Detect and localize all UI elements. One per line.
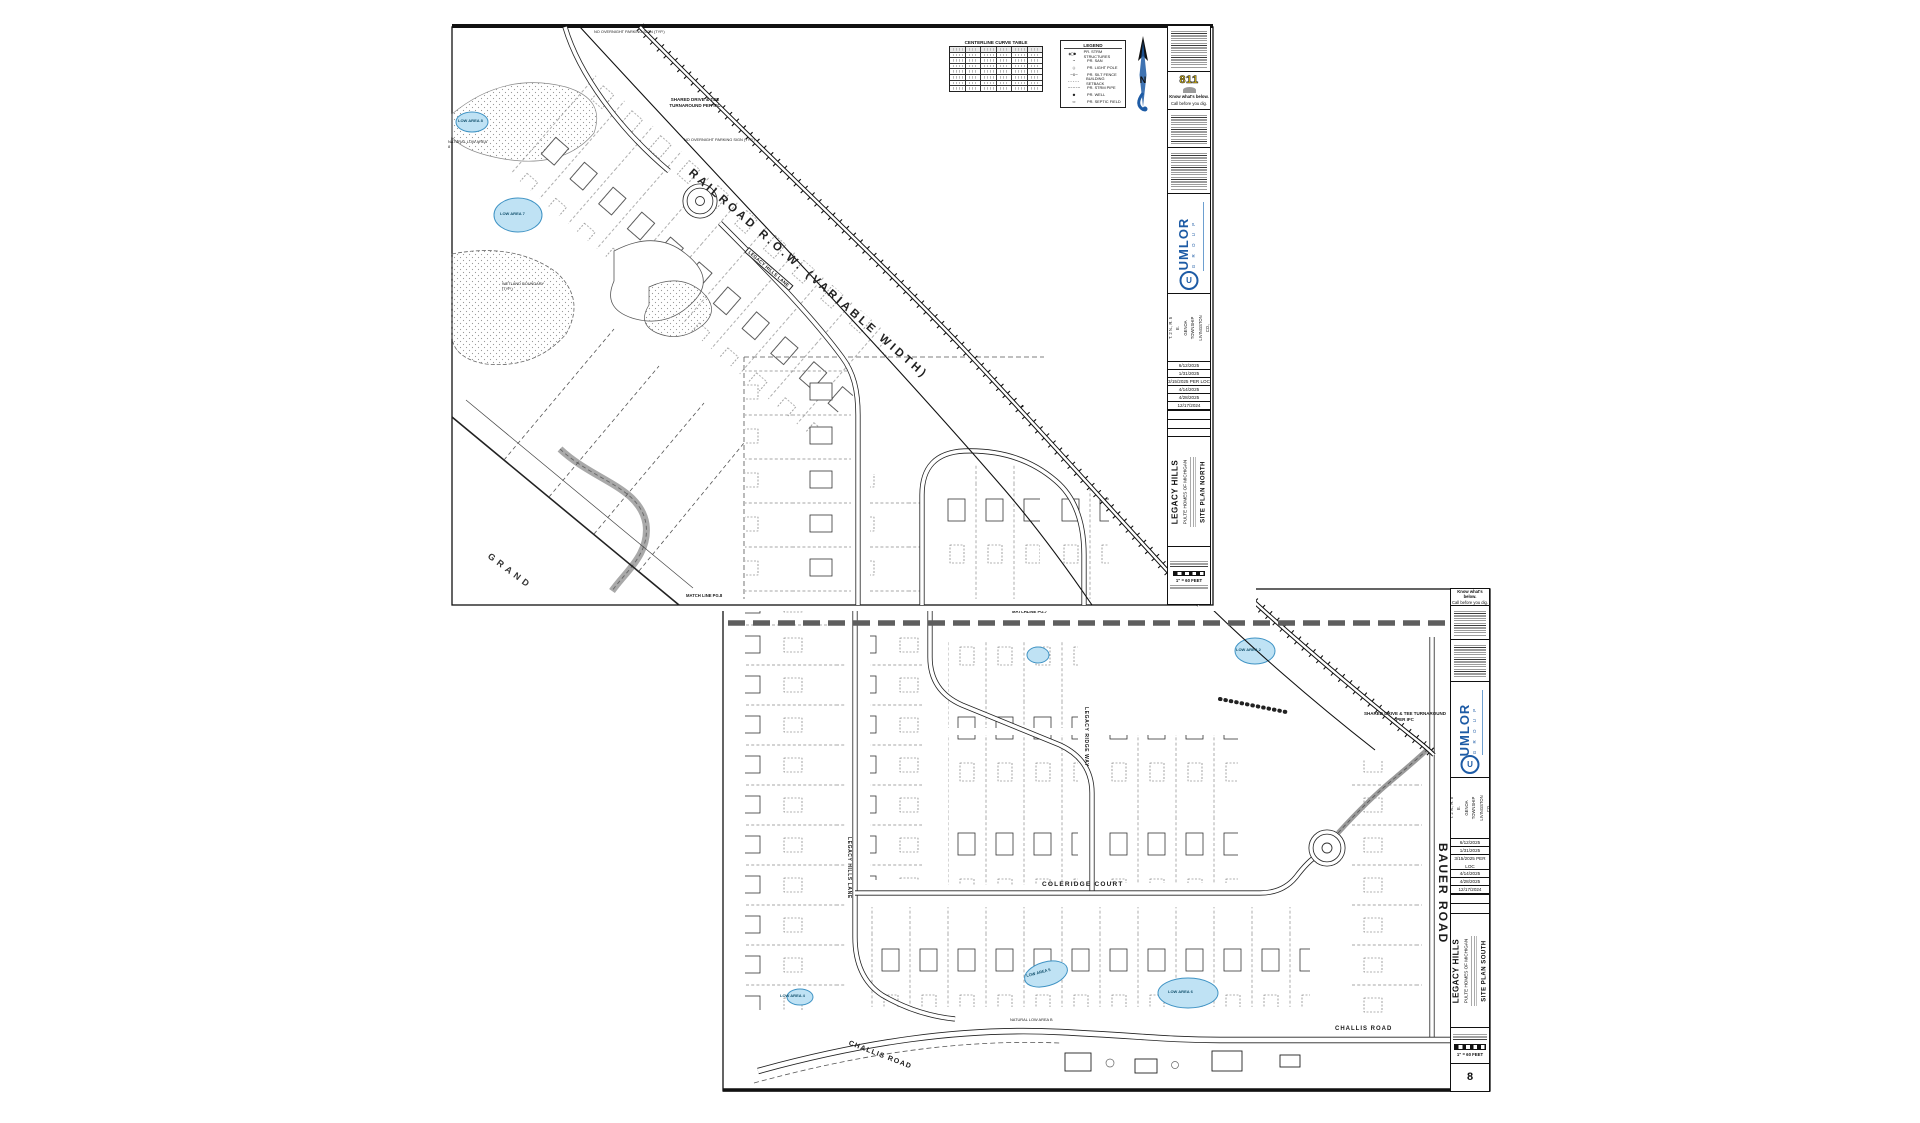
curve-table-title: CENTERLINE CURVE TABLE [949,40,1043,45]
legend-label: PR. SAN [1087,58,1103,63]
umlor-logo-panel: UMLOR G R O U P U [1451,682,1489,778]
legend-label: PR. STRM PIPE [1087,85,1116,90]
umlor-roundel-icon: U [1461,755,1480,774]
know-whats-below: Know what's below. [1169,94,1208,99]
street-label-coleridge-court: COLERIDGE COURT [1042,881,1124,888]
note-no-parking: NO OVERNIGHT PARKING SIGN (TYP.) [684,137,755,142]
graphic-scale-bar [1454,1044,1486,1050]
note-no-parking: NO OVERNIGHT PARKING SIGN (TYP.) [594,29,665,34]
umlor-wordmark: UMLOR [1177,217,1190,270]
sheet-title: SITE PLAN NORTH [1200,457,1208,527]
revision-row: 4/14/2025 [1451,869,1489,877]
umlor-roundel-icon: U [1180,271,1199,290]
pond-label-low-area-2: LOW AREA 2 [1236,647,1261,652]
note-natural-low-area: NATURAL LOW AREA B [1010,1017,1053,1022]
call-before-dig: Call before you dig. [1451,600,1489,605]
project-panel-north: LEGACY HILLS PULTE HOMES OF MICHIGAN SIT… [1168,437,1210,547]
scale-rows-texture [1170,585,1208,590]
call811-text-south: Know what's below. Call before you dig. [1451,589,1489,606]
blank-revision-rows [1451,894,1489,914]
street-label-challis-road-right: CHALLIS ROAD [1335,1026,1392,1032]
street-label-bauer-road: BAUER ROAD [1436,843,1450,944]
sheet-site-plan-north: RAILROAD R.O.W. (VARIABLE WIDTH) LEGACY … [444,19,1256,611]
pond-label-low-area-8: LOW AREA 8 [458,118,483,123]
client-name: PULTE HOMES OF MICHIGAN [1182,457,1188,527]
legend: LEGEND ◉□●PR. STRM STRUCTURES ~PR. SAN ○… [1060,40,1126,108]
call811-panel: 811 Know what's below. Call before you d… [1168,72,1210,110]
project-panel-south: LEGACY HILLS PULTE HOMES OF MICHIGAN SIT… [1451,914,1489,1028]
street-label-legacy-ridge-way: LEGACY RIDGE WAY [1083,707,1089,767]
legend-symbol-light-pole-icon: ○ [1064,65,1084,70]
sheet-number: 8 [1451,1064,1489,1091]
scale-block-north: 1" = 60 FEET [1168,547,1210,604]
revision-row: 1/31/2025 [1451,846,1489,854]
revision-row: 6/12/2025 [1451,839,1489,846]
revision-row: 6/12/2025 [1168,362,1210,369]
blank-revision-rows [1168,410,1210,437]
revision-row: 4/28/2025 [1451,877,1489,885]
scale-text: 1" = 60 FEET [1176,578,1202,583]
umlor-group-label: G R O U P [1190,217,1197,270]
note-wetland-boundary: WETLAND BOUNDARY (TYP.) [502,281,544,291]
revision-table: 6/12/2025 1/31/2025 3/15/2025 PER LOC 4/… [1168,362,1210,410]
note-natural-low-area: NATURAL LOW AREA 8 [448,139,490,149]
pond-label-low-area-6: LOW AREA 6 [1168,989,1193,994]
know-whats-below: Know what's below. [1451,589,1489,599]
project-name: LEGACY HILLS [1170,457,1180,527]
legend-symbol-strm-structures-icon: ◉□● [1064,51,1081,56]
notes-paragraph [1451,640,1489,682]
revision-table: 6/12/2025 1/31/2025 3/15/2025 PER LOC 4/… [1451,839,1489,894]
legend-symbol-strm-pipe-icon: –·–·– [1064,85,1084,90]
address-rule [1203,202,1204,271]
note-shared-drive-north: SHARED DRIVE & TEE TURNAROUND PER IFC [659,97,731,108]
notes-paragraph [1168,148,1210,194]
page: MATCHLINE PG.7 LEGACY RIDGE WAY LEGACY H… [0,0,1920,1123]
legend-label: PR. LIGHT POLE [1087,65,1117,70]
revision-row: 3/15/2025 PER LOC [1168,377,1210,385]
township-line: GENOA TOWNSHIP [1181,315,1196,340]
legend-symbol-well-icon: ● [1064,92,1084,97]
scale-rows-texture [1170,561,1208,569]
revision-row: 12/17/2024 [1451,885,1489,893]
svg-text:N: N [1140,75,1147,85]
umlor-logo-panel: UMLOR G R O U P U [1168,194,1210,294]
client-address-texture [1471,936,1476,1006]
umlor-wordmark: UMLOR [1458,703,1471,756]
county-line: LIVINGSTON CO., MICHIGAN [1478,795,1489,820]
county-line: LIVINGSTON CO., MICHIGAN [1197,315,1210,340]
client-address-texture [1190,457,1195,527]
revision-row: 12/17/2024 [1168,401,1210,409]
legend-symbol-septic-icon: ▭ [1064,99,1084,104]
notes-paragraph [1168,110,1210,148]
legend-symbol-setback-icon: ----- [1064,79,1083,84]
scale-text: 1" = 60 FEET [1457,1052,1483,1057]
matchline-label-north: MATCH LINE PG.8 [686,593,722,598]
graphic-scale-bar [1173,571,1205,577]
client-name: PULTE HOMES OF MICHIGAN [1463,936,1469,1006]
centerline-curve-table: CENTERLINE CURVE TABLE [949,40,1043,92]
sheet-site-plan-south: MATCHLINE PG.7 LEGACY RIDGE WAY LEGACY H… [720,585,1497,1095]
sheet-title: SITE PLAN SOUTH [1481,936,1489,1006]
south-linework [720,585,1497,1095]
section-panel: SECTION 23 T. 2 N., R. 5 E. GENOA TOWNSH… [1451,778,1489,839]
legend-symbol-san-icon: ~ [1064,58,1084,63]
title-block-south: Know what's below. Call before you dig. … [1450,588,1490,1092]
call811-mound-icon [1183,87,1196,93]
trs-line: T. 2 N., R. 5 E. [1451,795,1462,820]
revision-row: 3/15/2025 PER LOC [1451,854,1489,869]
pond-label-low-area-7: LOW AREA 7 [500,211,525,216]
project-name: LEGACY HILLS [1451,936,1461,1006]
pond-label-low-area-4: LOW AREA 4 [780,993,805,998]
trs-line: T. 2 N., R. 5 E. [1168,315,1181,340]
title-block-north: 811 Know what's below. Call before you d… [1167,25,1211,605]
notes-paragraph [1451,606,1489,640]
legend-symbol-silt-fence-icon: —x— [1064,72,1084,77]
umlor-group-label: G R O U P [1471,703,1478,756]
north-arrow-icon: N [1130,35,1156,113]
revision-row: 4/14/2025 [1168,385,1210,393]
note-shared-drive-south: SHARED DRIVE & TEE TURNAROUND PER IFC [1364,711,1446,722]
scale-block-south: 1" = 60 FEET [1451,1028,1489,1064]
street-label-legacy-hills-lane: LEGACY HILLS LANE [846,837,852,899]
notes-paragraph [1168,26,1210,72]
call811-logo: 811 [1179,75,1198,86]
legend-label: PR. WELL [1087,92,1105,97]
township-line: GENOA TOWNSHIP [1462,795,1477,820]
legend-label: PR. SEPTIC FIELD [1087,99,1121,104]
section-panel: SECTION 23 T. 2 N., R. 5 E. GENOA TOWNSH… [1168,294,1210,362]
revision-row: 4/28/2025 [1168,393,1210,401]
scale-rows-texture [1453,1034,1487,1042]
call-before-dig: Call before you dig. [1171,101,1207,106]
address-rule [1482,690,1483,755]
revision-row: 1/31/2025 [1168,369,1210,377]
